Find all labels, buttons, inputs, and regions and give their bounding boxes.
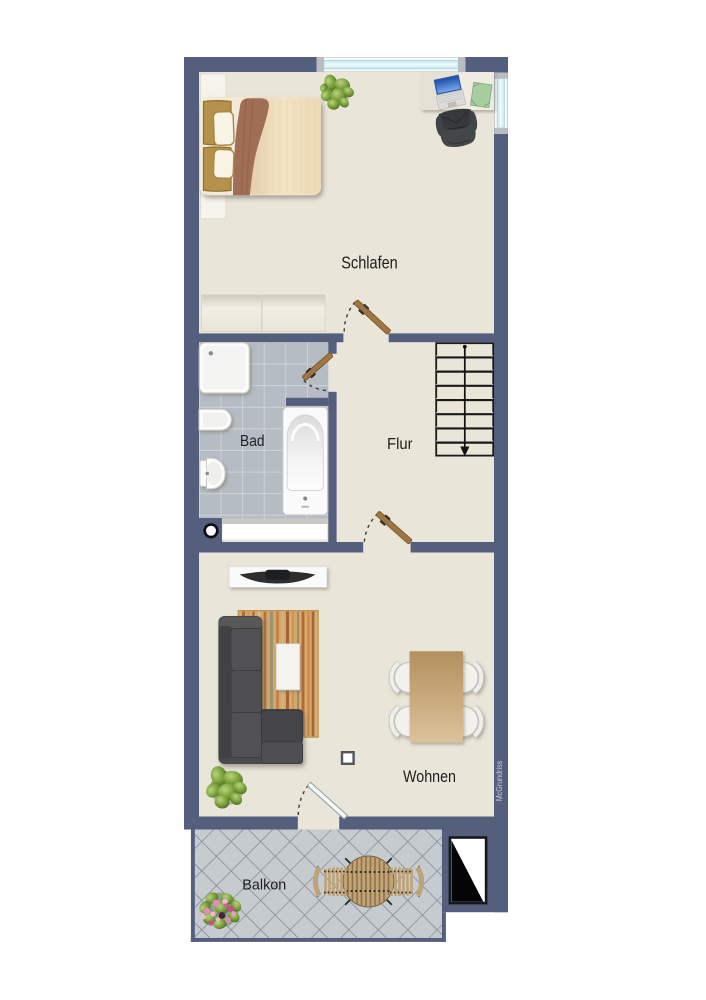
svg-text:McGrundriss: McGrundriss [495, 761, 504, 802]
svg-text:Schlafen: Schlafen [341, 253, 398, 273]
svg-text:Flur: Flur [387, 436, 413, 453]
svg-text:Bad: Bad [240, 433, 265, 450]
svg-text:Balkon: Balkon [242, 877, 286, 894]
svg-text:Wohnen: Wohnen [403, 767, 456, 786]
